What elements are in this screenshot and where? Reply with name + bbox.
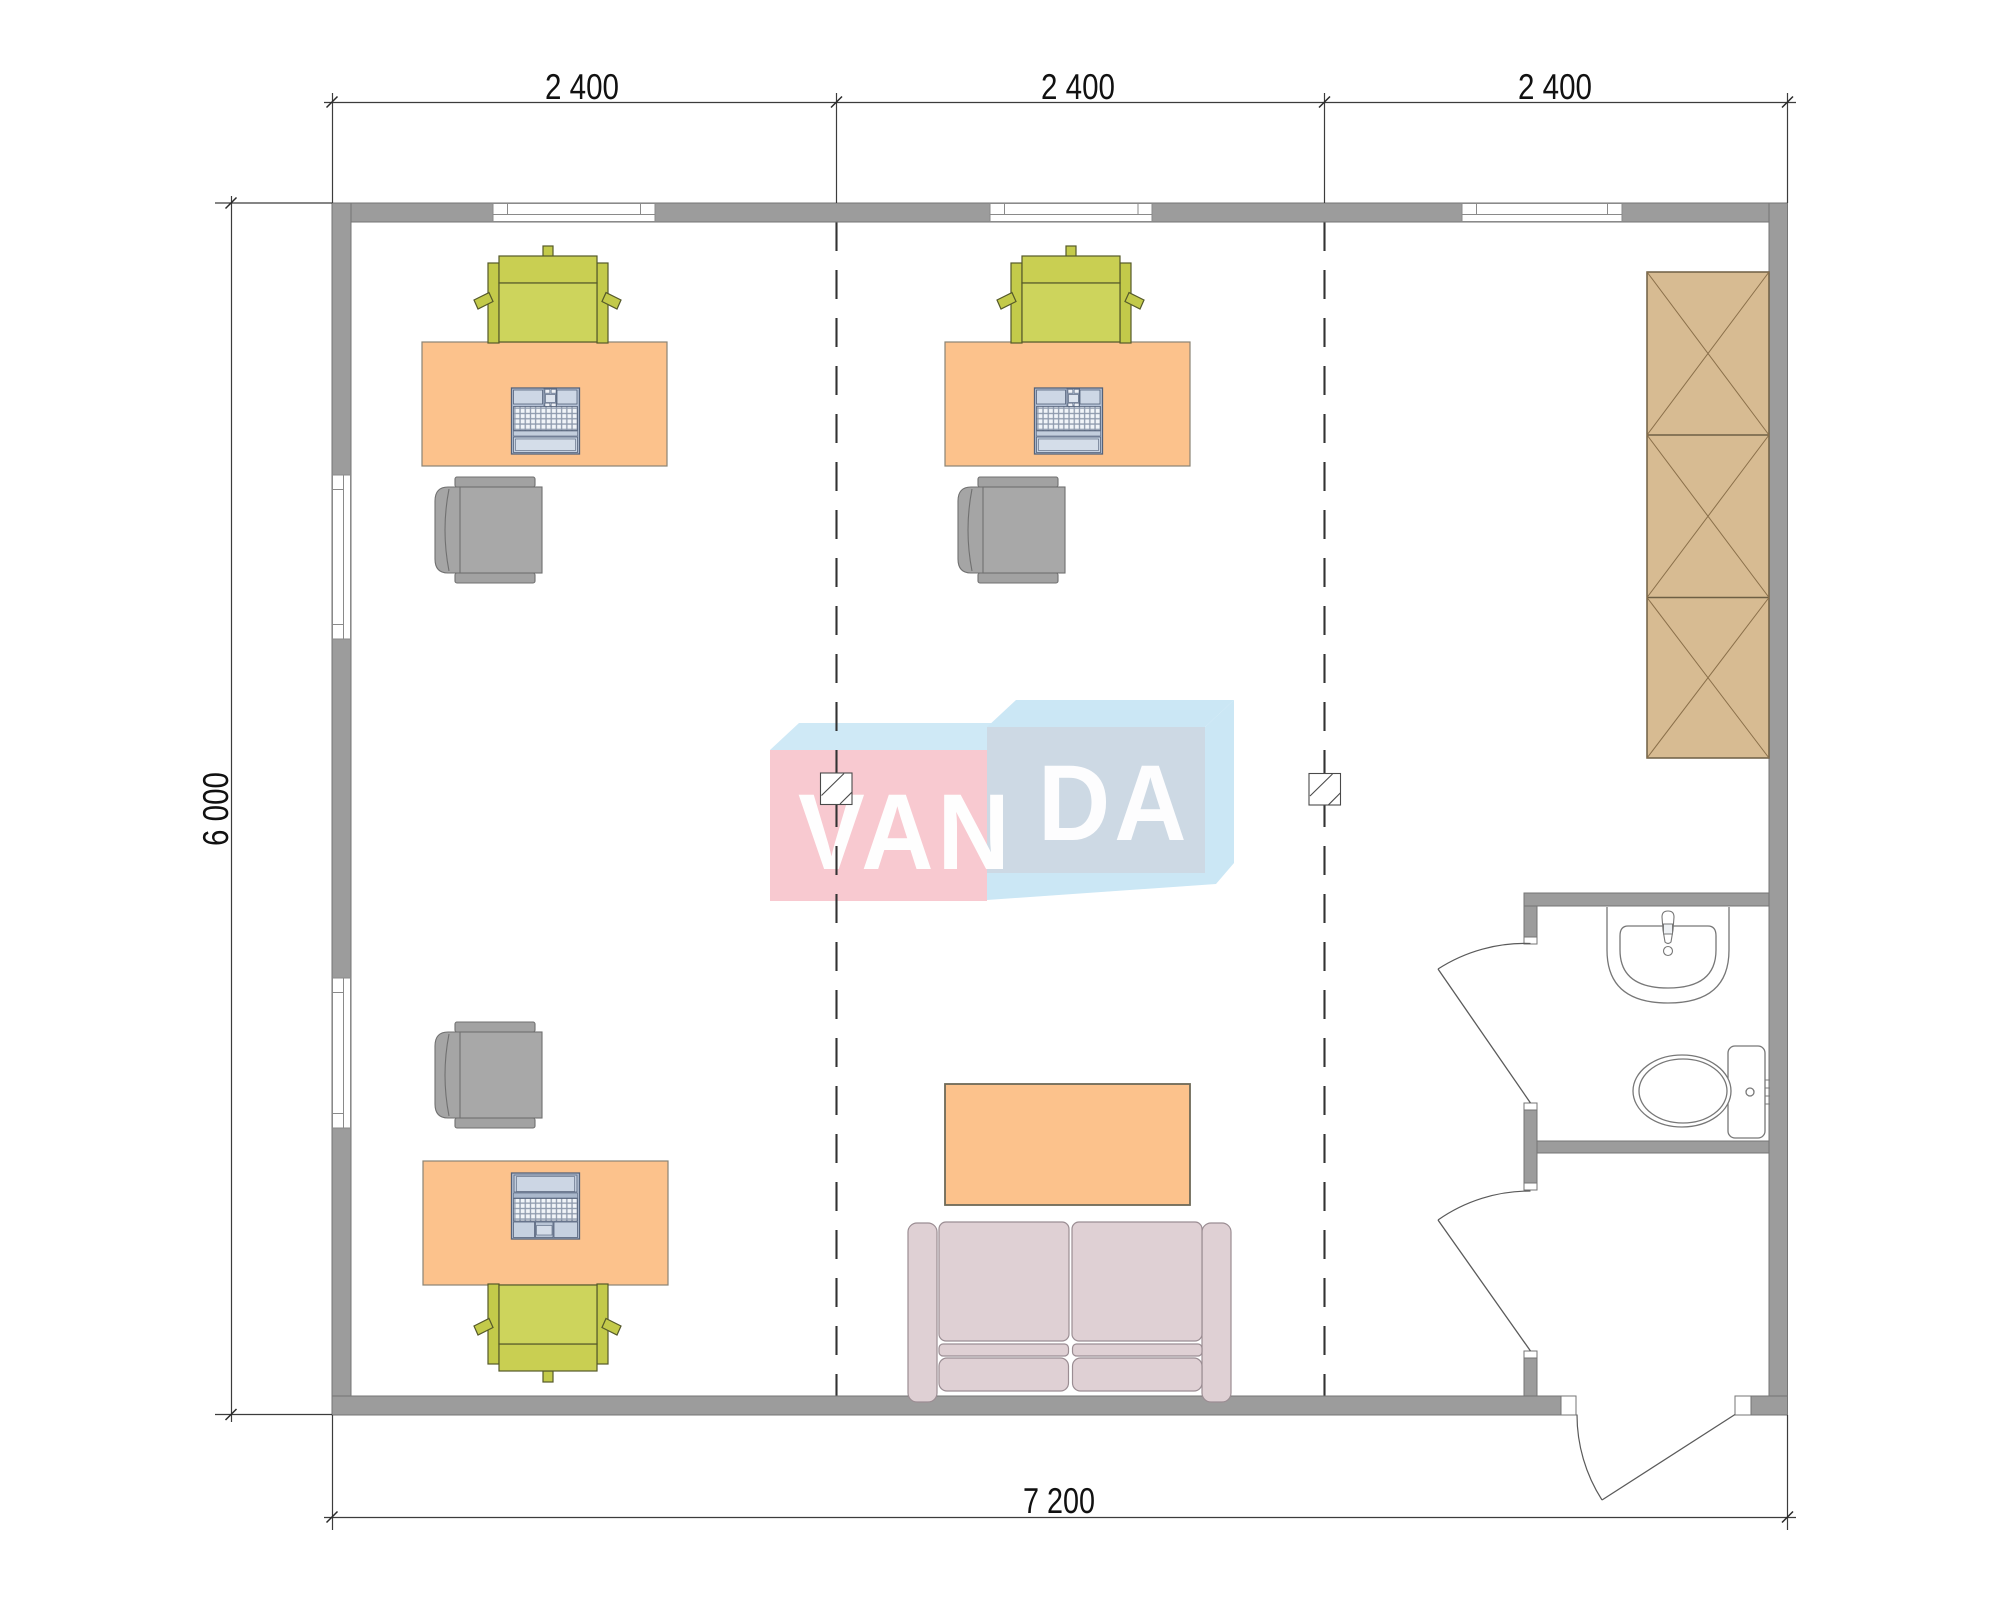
svg-text:2 400: 2 400 bbox=[1518, 66, 1592, 107]
svg-text:7 200: 7 200 bbox=[1023, 1480, 1095, 1521]
svg-text:2 400: 2 400 bbox=[545, 66, 619, 107]
svg-text:DA: DA bbox=[1038, 743, 1190, 864]
svg-text:6 000: 6 000 bbox=[195, 772, 236, 846]
svg-text:2 400: 2 400 bbox=[1041, 66, 1115, 107]
